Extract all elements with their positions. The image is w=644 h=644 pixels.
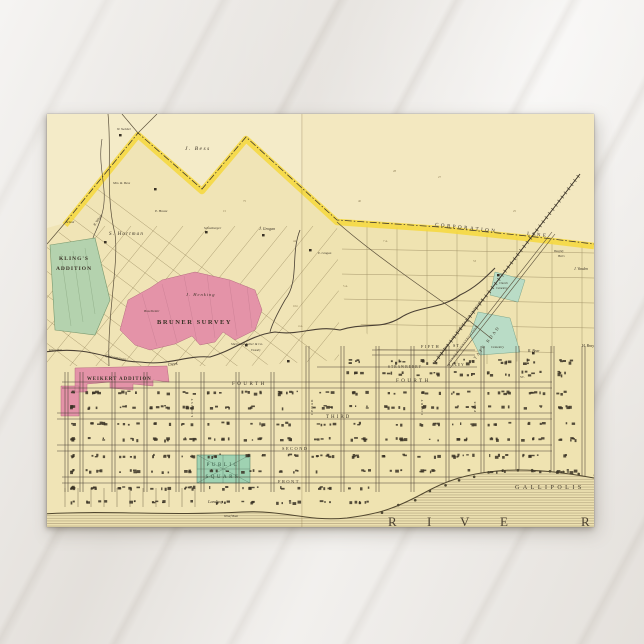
map-label-v: V <box>460 514 470 527</box>
map-label-wharf-boat: Wharf Boat <box>224 514 238 518</box>
map-label-brachletter: Brachletter <box>144 309 160 313</box>
map-label-church: Church <box>499 281 508 285</box>
map-label-public: PUBLIC <box>207 463 240 468</box>
map-label-landing: Landing <box>207 499 223 504</box>
map-label-i: I <box>427 514 431 527</box>
map-label-creek: Creek <box>167 361 178 367</box>
landing-lots <box>65 488 195 507</box>
map-label-school: School <box>66 220 74 224</box>
map-label-4-a: 4 A. <box>298 324 303 328</box>
map-label-bruner-survey: BRUNER SURVEY <box>157 319 232 326</box>
map-label-104: 104 <box>293 304 298 308</box>
map-label-sherwood-fuller-co: Sherwood Fuller & Co. <box>231 342 263 346</box>
map-label-strawberry: STRAWBERRY <box>388 365 422 369</box>
map-label-s-hartman: S. Hartman <box>109 232 144 237</box>
map-label-53: 53 <box>473 259 477 263</box>
map-label-r-bear: R. Bear <box>527 349 540 353</box>
map-label-cemetery: Cemetery <box>496 286 508 290</box>
map-label-chicamauga: Chicamauga <box>105 353 127 362</box>
map-label-fourth: FOURTH <box>232 382 267 387</box>
map-label-gallipolis: GALLIPOLIS <box>515 485 585 491</box>
map-label-27: 27 <box>438 175 442 179</box>
map-label-locust: LOCUST <box>190 398 194 417</box>
map-label-r: R <box>581 514 590 527</box>
map-label-schonberger: Schonberger <box>204 226 222 230</box>
map-label-w-swisher: W. Swisher <box>117 127 132 131</box>
fold-right-tint <box>302 114 594 527</box>
map-label-fifth: FIFTH <box>421 344 440 349</box>
map-label-15: 15 <box>223 209 227 213</box>
vintage-map-postcard: W. SwisherJ. BessMrs. R. BessE. HouseB. … <box>47 114 594 527</box>
map-label-st: ST. <box>453 343 462 348</box>
map-label-28: 28 <box>393 169 397 173</box>
map-label-75: 75 <box>243 199 247 203</box>
map-label-5-a: 5 A. <box>343 284 348 288</box>
map-label-kling-s: KLING'S <box>59 256 89 262</box>
map-label-e-grogan: E. Grogan <box>317 251 332 255</box>
map-label-j-henking: J. Henking <box>186 292 216 297</box>
map-label-pine: PINE <box>473 400 477 412</box>
map-label-r: R <box>388 514 397 527</box>
map-label-foundry: Foundry <box>250 349 261 352</box>
map-label-mrs-r-bess: Mrs. R. Bess <box>112 181 131 185</box>
map-label-heirs: Heirs <box>557 254 565 258</box>
map-label-beeghly: Beeghly <box>554 249 564 253</box>
map-svg: W. SwisherJ. BessMrs. R. BessE. HouseB. … <box>47 114 594 527</box>
map-label-7-a: 7 A. <box>383 239 388 243</box>
map-label-e: E <box>500 514 508 527</box>
map-label-fourth: FOURTH <box>396 379 431 384</box>
map-label-front: FRONT <box>278 479 300 484</box>
klings-addition-area <box>50 238 110 335</box>
map-label-kling-mill: Kling Mill <box>48 348 62 352</box>
map-label-cedar: CEDAR <box>310 399 314 416</box>
map-label-third: THIRD <box>326 415 351 420</box>
map-label-40: 40 <box>358 199 362 203</box>
map-label-cemetery: Cemetery <box>491 345 504 349</box>
map-label-j-vanden: J. Vanden <box>574 267 588 271</box>
map-label-b-wilson: B. Wilson <box>93 213 104 226</box>
map-label-court: COURT <box>420 399 424 415</box>
map-label-e-house: E. House <box>154 209 168 213</box>
map-label-h-bray: H. Bray <box>581 344 594 348</box>
map-label-j-grogan: J. Grogan <box>259 226 275 231</box>
fold-crease <box>301 114 303 527</box>
map-label-j-bess: J. Bess <box>185 146 211 152</box>
map-label-second: SECOND <box>282 446 309 451</box>
map-label-st: ST. <box>520 375 525 379</box>
map-label-25: 25 <box>513 209 517 213</box>
map-label-weikert-addition: WEIKERT ADDITION <box>87 377 152 382</box>
map-label-addition: ADDITION <box>56 266 92 272</box>
page-background: { "scene": { "description_colors": { "ba… <box>0 0 644 644</box>
map-label-square: SQUARE <box>205 475 240 480</box>
map-label-44: 44 <box>293 239 297 243</box>
map-label-alley: ALLEY <box>448 363 465 367</box>
